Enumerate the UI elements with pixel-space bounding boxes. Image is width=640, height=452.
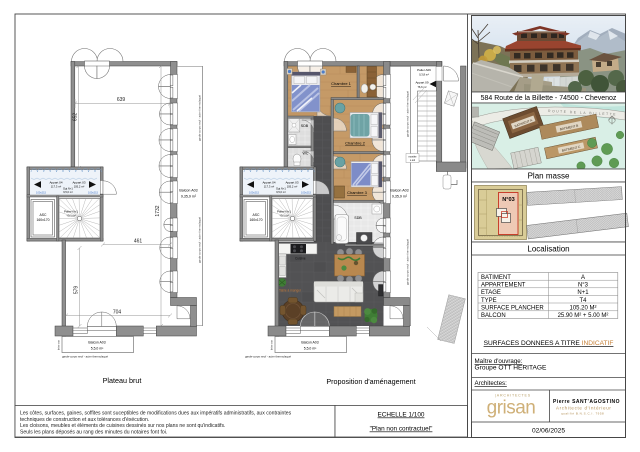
svg-text:Architecte d'Intérieur: Architecte d'Intérieur xyxy=(556,406,612,411)
svg-text:Palier N+1: Palier N+1 xyxy=(64,210,78,214)
svg-text:Seuls les plans déposés au ran: Seuls les plans déposés au rang des minu… xyxy=(20,430,167,436)
svg-text:652: 652 xyxy=(73,113,79,122)
svg-text:+0,1 m²: +0,1 m² xyxy=(279,214,288,218)
svg-text:5,5,0 m²: 5,5,0 m² xyxy=(304,347,317,351)
svg-text:BATIMENT: BATIMENT xyxy=(481,275,511,281)
svg-text:Palier A09: Palier A09 xyxy=(417,68,431,72)
svg-text:garde-corps neuf - acier therm: garde-corps neuf - acier thermolaqué xyxy=(406,239,410,285)
svg-text:SDB: SDB xyxy=(354,216,362,220)
svg-text:76,6 m²: 76,6 m² xyxy=(417,85,426,89)
svg-text:garde-corps neuf - acier therm: garde-corps neuf - acier thermolaqué xyxy=(198,95,202,141)
svg-text:Chambre 3: Chambre 3 xyxy=(347,190,368,195)
svg-text:ETAGE: ETAGE xyxy=(481,290,501,296)
svg-text:+0,1 m²: +0,1 m² xyxy=(66,214,75,218)
svg-text:garde-corps neuf - acier therm: garde-corps neuf - acier thermolaqué xyxy=(406,91,410,137)
svg-text:100x215: 100x215 xyxy=(249,191,260,195)
svg-text:garde-corps neuf - acier therm: garde-corps neuf - acier thermolaqué xyxy=(245,355,291,359)
svg-text:Appart 04: Appart 04 xyxy=(262,181,275,185)
svg-text:Les côtes, surfaces, gaines, s: Les côtes, surfaces, gaines, soffites so… xyxy=(20,411,292,417)
svg-text:1732: 1732 xyxy=(155,205,161,216)
svg-text:25.90 M² + 5.00 M²: 25.90 M² + 5.00 M² xyxy=(558,313,609,319)
svg-text:Balcon A03: Balcon A03 xyxy=(88,341,105,345)
svg-text:TYPE: TYPE xyxy=(481,298,497,304)
svg-text:Appart 04: Appart 04 xyxy=(49,181,62,185)
svg-text:WC: WC xyxy=(303,152,309,156)
svg-text:117,3 m²: 117,3 m² xyxy=(51,185,62,189)
svg-text:Balcon A03: Balcon A03 xyxy=(390,189,408,193)
svg-text:A: A xyxy=(581,275,585,281)
svg-text:N°3: N°3 xyxy=(578,283,589,289)
svg-text:"Plan non contractuel": "Plan non contractuel" xyxy=(370,426,433,433)
svg-text:T4: T4 xyxy=(579,298,587,304)
svg-text:Balcon A03: Balcon A03 xyxy=(301,341,318,345)
svg-text:Appart 03: Appart 03 xyxy=(72,181,85,185)
svg-text:639: 639 xyxy=(117,97,126,103)
svg-text:584 Route de la Billette - 745: 584 Route de la Billette - 74500 - Cheve… xyxy=(481,95,617,102)
svg-text:Les cloisons, meubles et éléme: Les cloisons, meubles et éléments de cui… xyxy=(20,423,225,429)
svg-text:100x215: 100x215 xyxy=(36,191,47,195)
svg-text:Dgt N+1: Dgt N+1 xyxy=(63,187,73,191)
svg-text:105.20 M²: 105.20 M² xyxy=(569,305,596,311)
svg-text:Chambre 2: Chambre 2 xyxy=(345,141,366,146)
svg-text:100x215: 100x215 xyxy=(88,191,99,195)
svg-text:Appart 03: Appart 03 xyxy=(285,181,298,185)
svg-text:SURFACES DONNEES A TITRE INDIC: SURFACES DONNEES A TITRE INDICATIF xyxy=(484,340,614,347)
svg-text:techniques de construction et: techniques de construction et aux toléra… xyxy=(20,417,149,423)
svg-text:100x215: 100x215 xyxy=(301,191,312,195)
svg-text:N+1: N+1 xyxy=(577,290,589,296)
svg-text:9,35,9 m²: 9,35,9 m² xyxy=(181,195,197,199)
svg-text:105,2 m²: 105,2 m² xyxy=(287,185,298,189)
svg-text:Proposition d'aménagement: Proposition d'aménagement xyxy=(326,377,415,386)
svg-text:Pierre SANT'AGOSTINO: Pierre SANT'AGOSTINO xyxy=(553,399,620,405)
svg-text:Table à manger: Table à manger xyxy=(279,289,302,293)
svg-text:SDB: SDB xyxy=(301,124,309,128)
svg-text:ASC: ASC xyxy=(253,213,261,217)
svg-text:grisan: grisan xyxy=(487,398,536,419)
svg-text:704: 704 xyxy=(113,310,122,316)
svg-text:Plateau brut: Plateau brut xyxy=(103,376,142,385)
svg-text:qualifié B.N.S.C.I. 7958: qualifié B.N.S.C.I. 7958 xyxy=(561,412,604,416)
svg-text:Chambre 1: Chambre 1 xyxy=(331,81,352,86)
svg-text:ASC: ASC xyxy=(40,213,48,217)
svg-text:105,2 m²: 105,2 m² xyxy=(74,185,85,189)
svg-text:160x170: 160x170 xyxy=(249,218,262,222)
svg-text:9,5,0 m²: 9,5,0 m² xyxy=(63,190,73,194)
svg-text:Palier N+1: Palier N+1 xyxy=(277,210,291,214)
svg-text:Groupe OTT HERITAGE: Groupe OTT HERITAGE xyxy=(475,365,548,372)
svg-text:ECHELLE 1/100: ECHELLE 1/100 xyxy=(378,412,425,419)
svg-text:Cuisine: Cuisine xyxy=(295,257,306,261)
svg-text:0,3,8 m²: 0,3,8 m² xyxy=(419,73,429,77)
svg-text:brise vue: brise vue xyxy=(58,339,61,350)
svg-text:Architectes:: Architectes: xyxy=(475,380,508,387)
svg-text:garde-corps neuf - acier therm: garde-corps neuf - acier thermolaqué xyxy=(62,355,108,359)
svg-text:461: 461 xyxy=(134,239,143,245)
svg-text:9,35,9 m²: 9,35,9 m² xyxy=(392,195,408,199)
svg-text:s.sol: s.sol xyxy=(410,159,415,162)
svg-text:9,5,0 m²: 9,5,0 m² xyxy=(276,190,286,194)
svg-text:Balcon A03: Balcon A03 xyxy=(179,189,197,193)
svg-text:BALCON: BALCON xyxy=(481,313,506,319)
svg-text:garde-corps neuf - acier therm: garde-corps neuf - acier thermolaqué xyxy=(198,217,202,263)
svg-text:117,3 m²: 117,3 m² xyxy=(264,185,275,189)
svg-text:APPARTEMENT: APPARTEMENT xyxy=(481,283,526,289)
svg-text:5,5,0 m²: 5,5,0 m² xyxy=(91,347,104,351)
svg-text:Dgt N+1: Dgt N+1 xyxy=(276,187,286,191)
svg-text:579: 579 xyxy=(74,286,80,295)
svg-text:brise vue: brise vue xyxy=(271,339,274,350)
svg-text:160x170: 160x170 xyxy=(36,218,49,222)
svg-text:Plan masse: Plan masse xyxy=(528,171,570,180)
svg-text:Localisation: Localisation xyxy=(527,244,569,253)
svg-text:SURFACE PLANCHER: SURFACE PLANCHER xyxy=(481,305,544,311)
svg-text:02/06/2025: 02/06/2025 xyxy=(532,428,565,435)
svg-text:Appart 09: Appart 09 xyxy=(415,81,428,85)
svg-text:N°03: N°03 xyxy=(502,197,515,203)
